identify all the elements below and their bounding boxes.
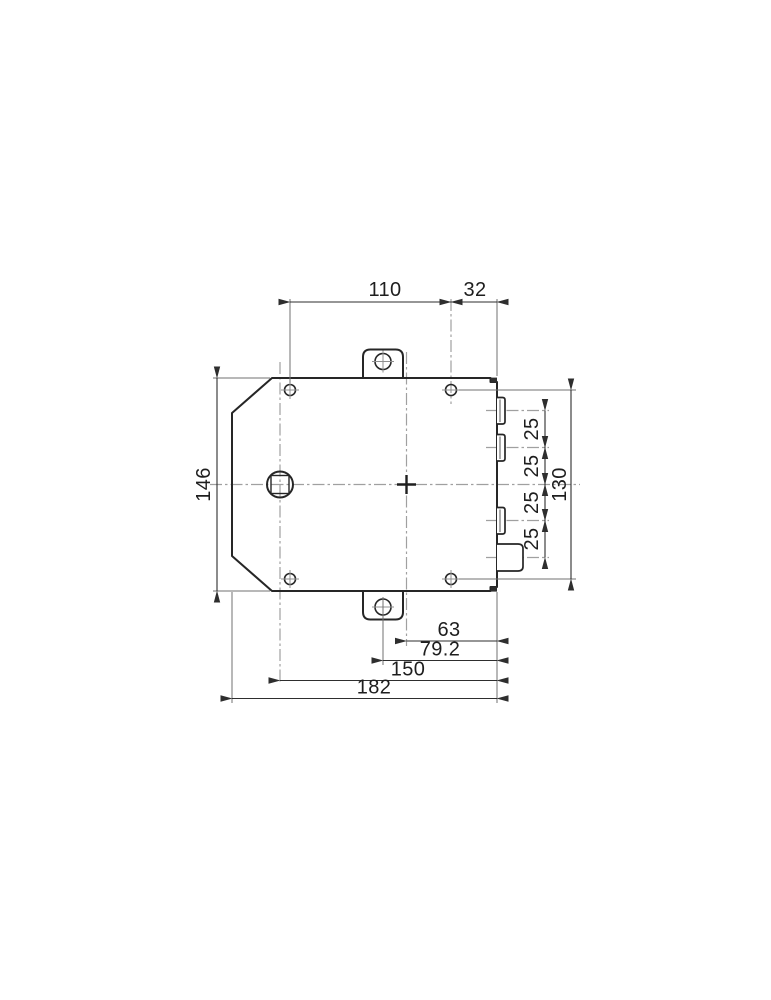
- terminal-tab-3: [497, 508, 505, 535]
- aux-block: [497, 544, 523, 571]
- dim-label-25-1: 25: [521, 417, 543, 440]
- dim-label-79: 79.2: [420, 639, 461, 661]
- technical-drawing: 110 32 146 130 25 25 25 25 63 79.2 150 1…: [0, 0, 771, 1000]
- dim-label-182: 182: [357, 677, 392, 699]
- dimension-labels: 110 32 146 130 25 25 25 25 63 79.2 150 1…: [193, 279, 571, 699]
- dim-label-25-2: 25: [521, 454, 543, 477]
- terminal-tab-1: [497, 398, 505, 425]
- dim-label-130: 130: [549, 467, 571, 502]
- terminal-tab-2: [497, 435, 505, 462]
- drawing-canvas: 110 32 146 130 25 25 25 25 63 79.2 150 1…: [0, 0, 771, 1000]
- corner-step-bottom-right: [491, 587, 497, 592]
- dim-label-32: 32: [463, 279, 486, 301]
- dim-label-25-3: 25: [521, 491, 543, 514]
- dim-label-146: 146: [193, 467, 215, 502]
- dim-label-110: 110: [368, 279, 401, 301]
- dim-label-150: 150: [391, 659, 426, 681]
- dim-label-25-4: 25: [521, 527, 543, 550]
- corner-step-top-right: [491, 378, 497, 383]
